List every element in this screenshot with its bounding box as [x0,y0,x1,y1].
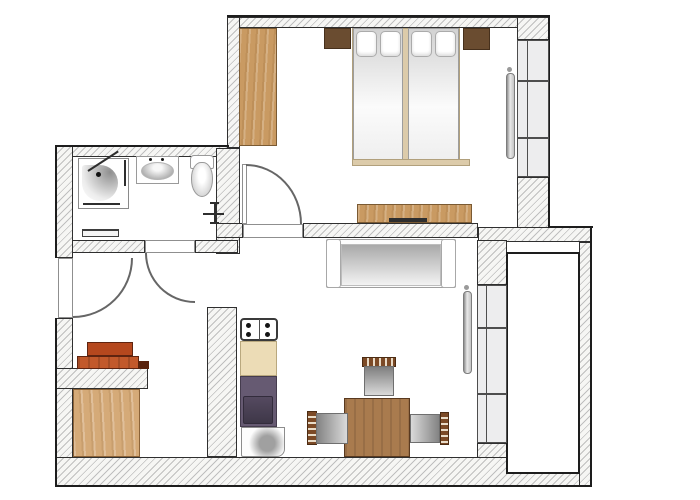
wall-left-upper [56,146,73,258]
stove-divider [259,319,260,340]
balcony-floor [506,252,580,474]
plumbing-cross-tick-bottom [210,222,219,224]
hall-cabinet [73,389,140,457]
shower-edge-bottom [83,203,120,205]
chair-left-seat [316,413,348,444]
bathroom-door-swing-arc [145,253,195,303]
shower-head-dot [96,172,101,177]
plumbing-cross-horizontal [203,213,224,215]
window-bedroom-cell-3 [517,138,549,177]
pillow-2 [380,31,401,57]
nightstand-left [324,28,351,49]
sink-tap-right [161,158,164,161]
wall-living-top-main [303,223,478,238]
wall-bottom [56,457,580,486]
nightstand-right [463,28,490,50]
wall-bathroom-right [216,148,240,254]
window-bedroom-cell-1 [517,40,549,81]
radiator-bedroom-valve [507,67,512,72]
dresser-handle [389,218,427,222]
sink-basin [141,162,174,180]
towel-radiator [82,229,119,237]
wall-kitchen-stub [207,307,237,457]
chair-right-seat [410,414,440,443]
window-living-mullion [486,285,487,443]
boundary-outer-right [590,226,592,487]
chair-top-seat [364,366,394,396]
radiator-living [463,291,472,374]
radiator-living-valve [464,285,469,290]
wall-bedroom-top [227,17,550,28]
boundary-left-lower [55,318,57,487]
sofa-armrest-left [326,239,341,288]
entry-door-leaf [58,258,73,318]
wall-bathroom-bottom-left [72,240,145,253]
wall-under-bedroom-window [517,177,550,228]
chair-right-backrest [440,412,449,445]
burner-1 [246,323,251,328]
floor-plan-canvas [0,0,700,500]
window-bedroom-mullion [527,40,528,177]
sink-tap-left [149,158,152,161]
boundary-bathroom-top [55,145,229,147]
wall-under-living-window [477,443,507,458]
bed-footboard [352,159,470,166]
wall-balcony-column [477,240,507,285]
bedroom-door-threshold [243,224,303,238]
wardrobe [239,28,277,146]
sofa-seat [341,244,441,286]
wall-bedroom-top-corner [517,17,550,40]
pillow-3 [411,31,432,57]
bathroom-door-leaf [145,240,195,253]
plumbing-cross-tick-top [210,202,219,204]
boundary-left-upper [55,145,57,258]
toilet-bowl [191,162,213,197]
pillow-1 [356,31,377,57]
burner-4 [265,332,270,337]
shoe-rack-top [87,342,133,356]
entry-door-swing-arc [73,258,133,318]
boundary-top [227,15,550,17]
bedroom-door-swing-arc [246,164,302,224]
shoe-rack-bottom [77,356,139,369]
wall-shoe-rack [56,368,148,389]
shoe-rack-step [138,361,149,369]
burner-2 [246,332,251,337]
shower-edge-right [124,160,126,186]
boundary-step-top [548,226,593,228]
kitchen-counter [240,341,277,376]
wall-living-top-left [216,223,243,238]
wall-bathroom-bottom-right [195,240,238,253]
dining-table [344,398,410,457]
window-bedroom-cell-2 [517,81,549,138]
kitchen-sink-inset [243,396,273,424]
window-living-cell-3 [477,394,507,443]
kitchen-appliance [241,427,285,457]
burner-3 [265,323,270,328]
window-living-cell-1 [477,285,507,328]
pillow-4 [435,31,456,57]
sofa-armrest-right [441,239,456,288]
window-living-cell-2 [477,328,507,394]
boundary-bottom [56,485,592,487]
radiator-bedroom [506,73,515,159]
